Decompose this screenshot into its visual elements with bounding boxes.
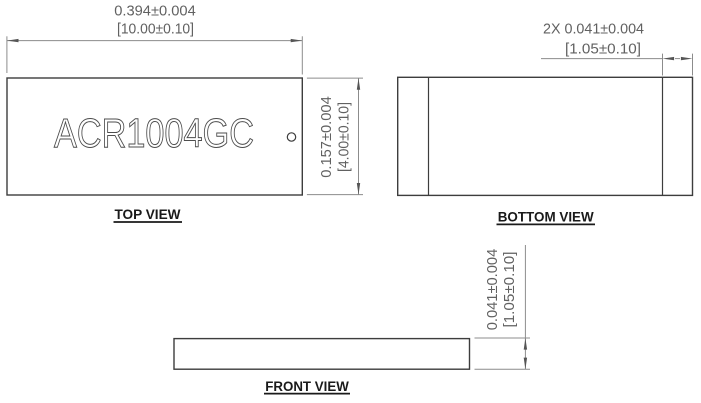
svg-text:2X 0.041±0.004: 2X 0.041±0.004 <box>543 22 644 38</box>
svg-text:[1.05±0.10]: [1.05±0.10] <box>565 42 641 58</box>
svg-text:0.157±0.004: 0.157±0.004 <box>319 96 335 178</box>
svg-text:0.041±0.004: 0.041±0.004 <box>485 249 501 331</box>
svg-text:TOP VIEW: TOP VIEW <box>115 207 181 222</box>
svg-text:[1.05±0.10]: [1.05±0.10] <box>502 252 518 328</box>
svg-text:[4.00±0.10]: [4.00±0.10] <box>337 102 353 172</box>
svg-text:0.394±0.004: 0.394±0.004 <box>114 4 196 20</box>
svg-text:[10.00±0.10]: [10.00±0.10] <box>117 22 194 38</box>
svg-text:FRONT VIEW: FRONT VIEW <box>265 379 349 394</box>
svg-text:BOTTOM VIEW: BOTTOM VIEW <box>498 209 594 224</box>
svg-text:ACR1004GC: ACR1004GC <box>54 110 254 156</box>
